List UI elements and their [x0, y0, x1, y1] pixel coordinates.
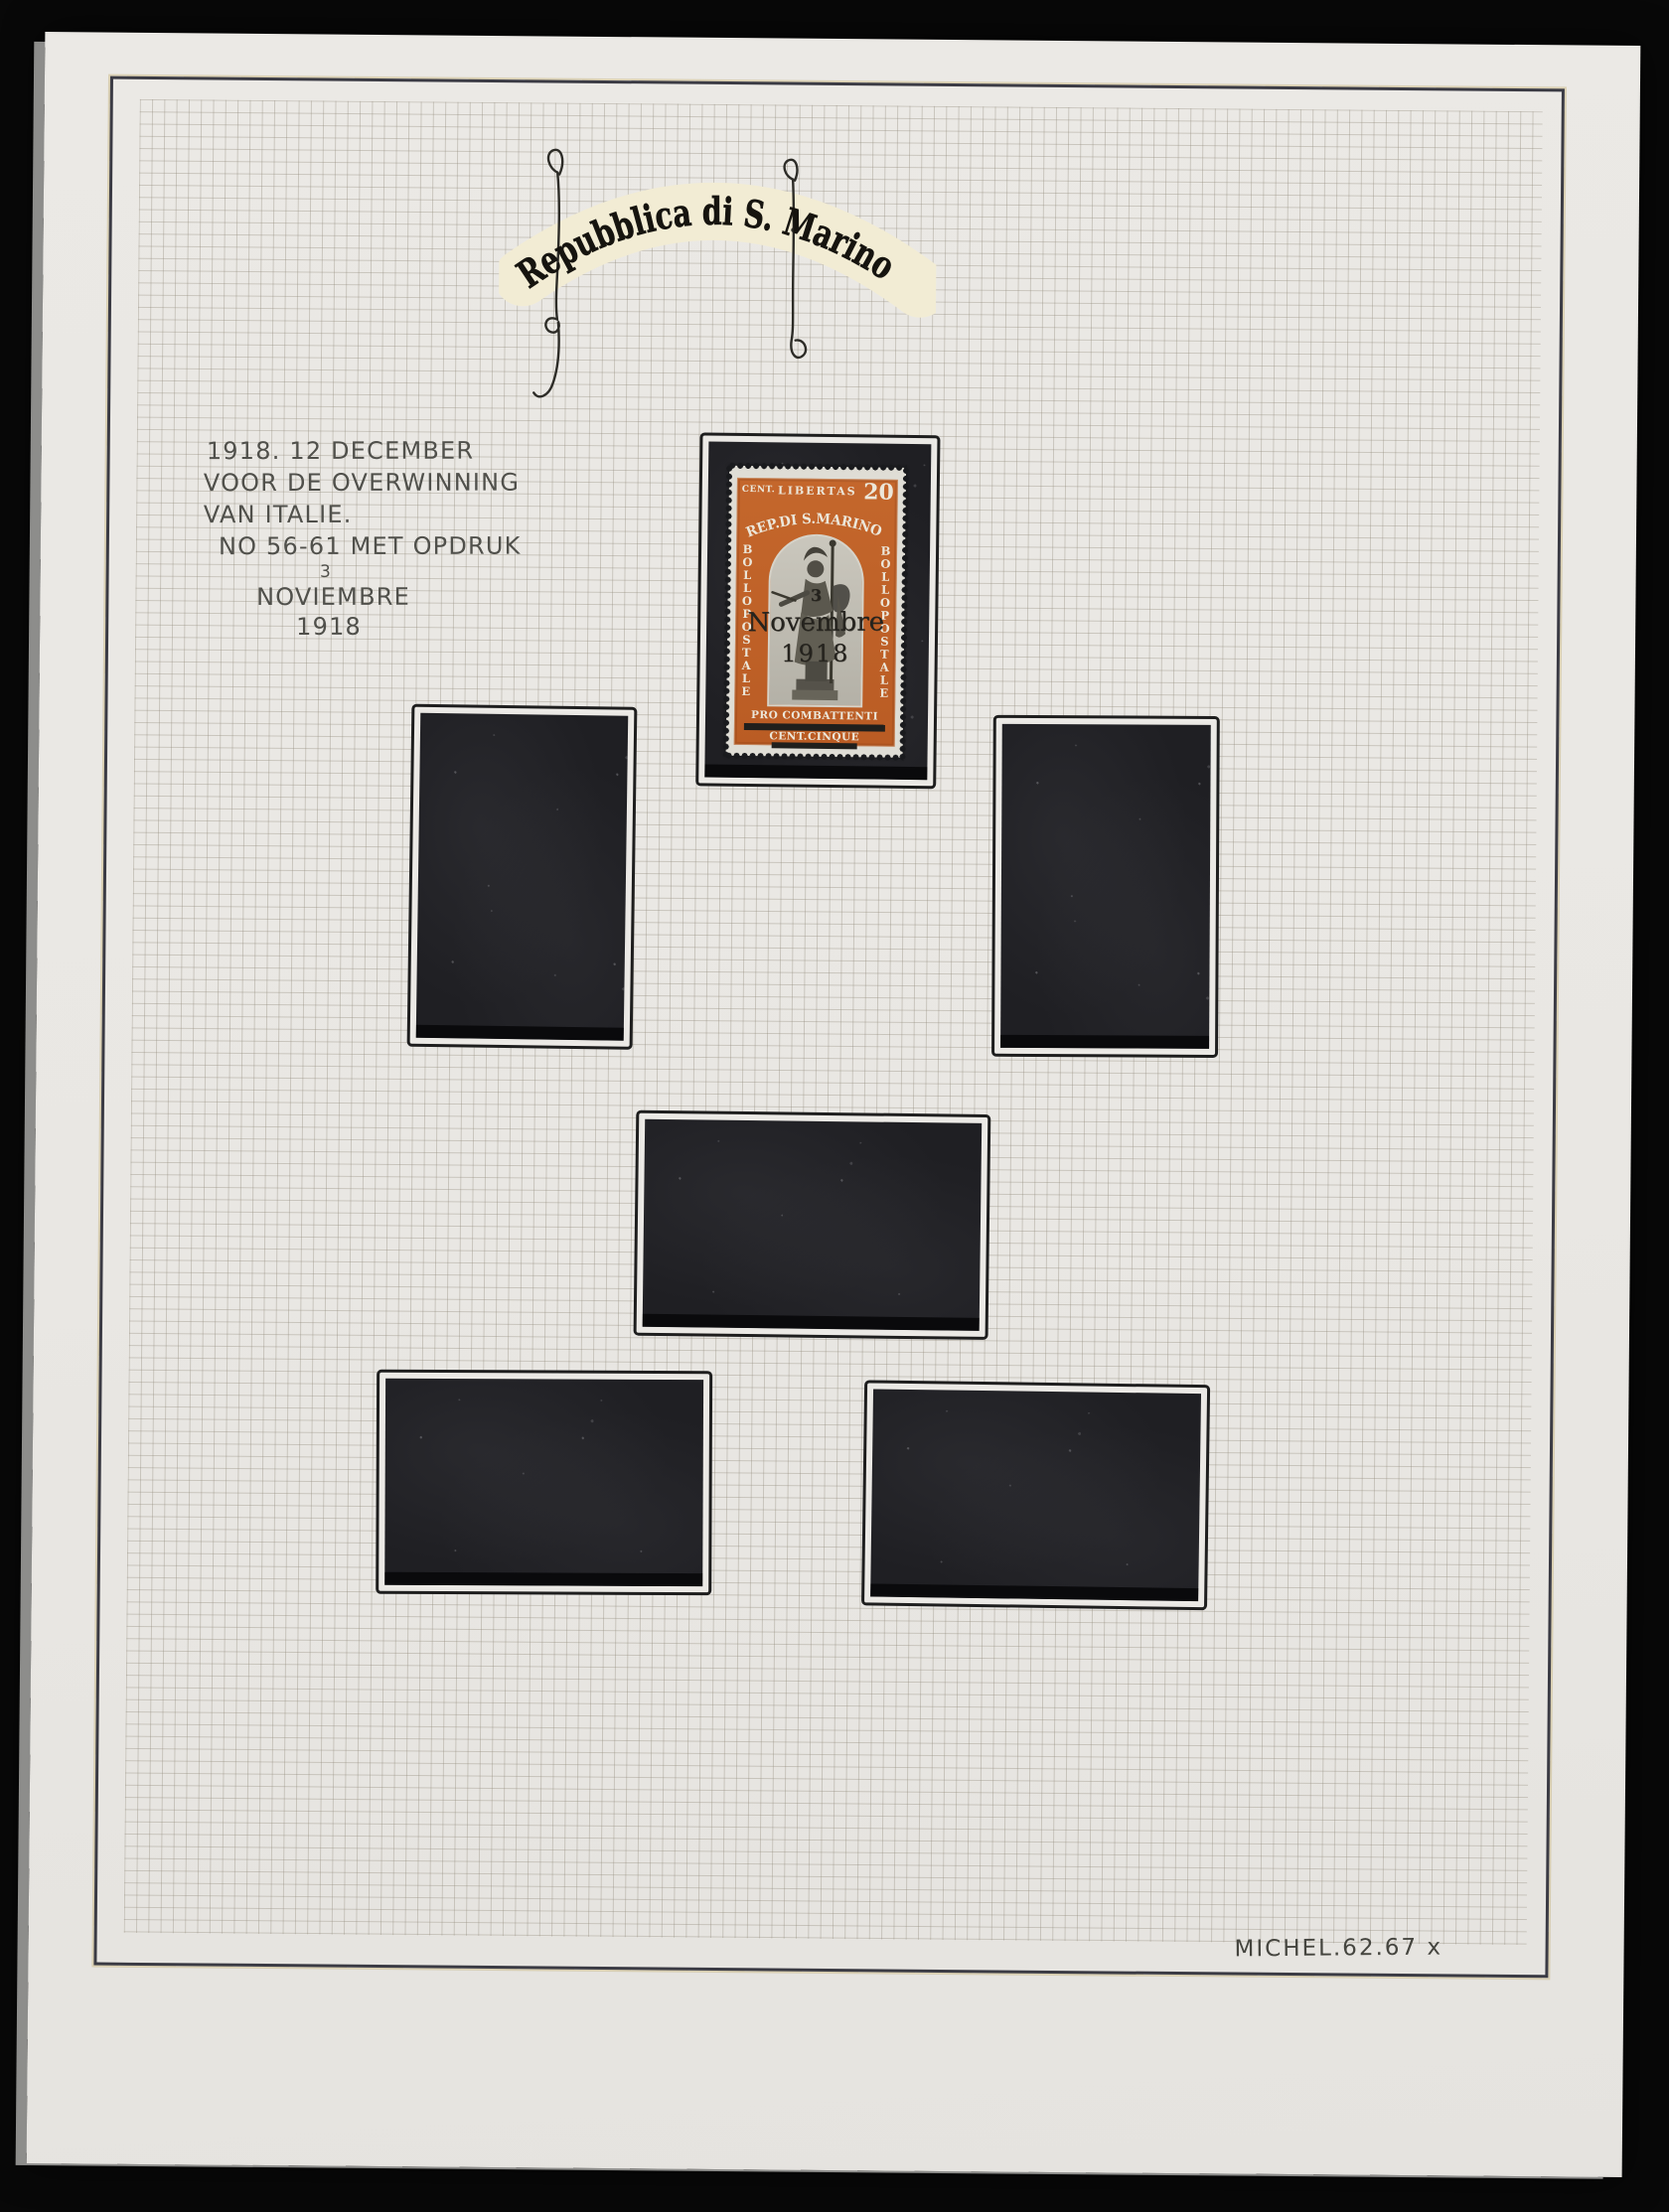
overprint-day: 3 [727, 585, 904, 605]
catalog-note: MICHEL.62.67 x [1234, 1935, 1442, 1963]
stamp-mount-frame: CENT. LIBERTAS 20 REP.DI S.MARINO BOLLO … [695, 432, 940, 789]
empty-mount-top-left [416, 713, 629, 1041]
empty-mount-frame-bottom-right [861, 1380, 1210, 1610]
annotation-line-4: NO 56-61 MET OPDRUK [219, 530, 522, 563]
empty-mount-bottom-left [384, 1379, 703, 1586]
overprint-bar-short [772, 742, 857, 749]
album-page-photo: Repubblica di S. Marino 1918. 12 DECEMBE… [0, 0, 1669, 2212]
annotation-line-2: VOOR DE OVERWINNING [204, 467, 522, 500]
annotation-line-3: VAN ITALIE. [204, 499, 522, 531]
empty-mount-middle [643, 1119, 983, 1331]
overprint-month: Novembre [727, 607, 904, 638]
annotation-block: 1918. 12 DECEMBER VOOR DE OVERWINNING VA… [204, 435, 522, 643]
stamp-mount: CENT. LIBERTAS 20 REP.DI S.MARINO BOLLO … [704, 441, 931, 780]
annotation-superscript: 3 [320, 562, 522, 582]
annotation-line-5: NOVIEMBRE [256, 582, 522, 612]
annotation-line-6: 1918 [296, 612, 522, 642]
empty-mount-top-right [1000, 724, 1211, 1049]
album-page: Repubblica di S. Marino 1918. 12 DECEMBE… [27, 32, 1641, 2177]
flourish-middle-icon [783, 160, 808, 358]
annotation-line-1: 1918. 12 DECEMBER [207, 435, 522, 468]
page-title-text: Repubblica di S. Marino [509, 187, 904, 300]
page-title: Repubblica di S. Marino [509, 187, 904, 300]
perforation-bottom [725, 753, 904, 761]
overprint-year: 1918 [727, 639, 904, 667]
perforation-top [728, 463, 907, 471]
stamp-bottom-label-1: PRO COMBATTENTI [726, 709, 903, 723]
empty-mount-bottom-right [870, 1389, 1201, 1601]
page-header: Repubblica di S. Marino [498, 108, 938, 420]
empty-mount-frame-top-right [991, 715, 1220, 1058]
empty-mount-frame-bottom-left [376, 1370, 712, 1595]
empty-mount-frame-middle [634, 1110, 991, 1340]
stamp-bottom-label-2: CENT.CINQUE [726, 730, 903, 744]
empty-mount-frame-top-left [407, 704, 638, 1050]
stamp: CENT. LIBERTAS 20 REP.DI S.MARINO BOLLO … [726, 466, 907, 758]
